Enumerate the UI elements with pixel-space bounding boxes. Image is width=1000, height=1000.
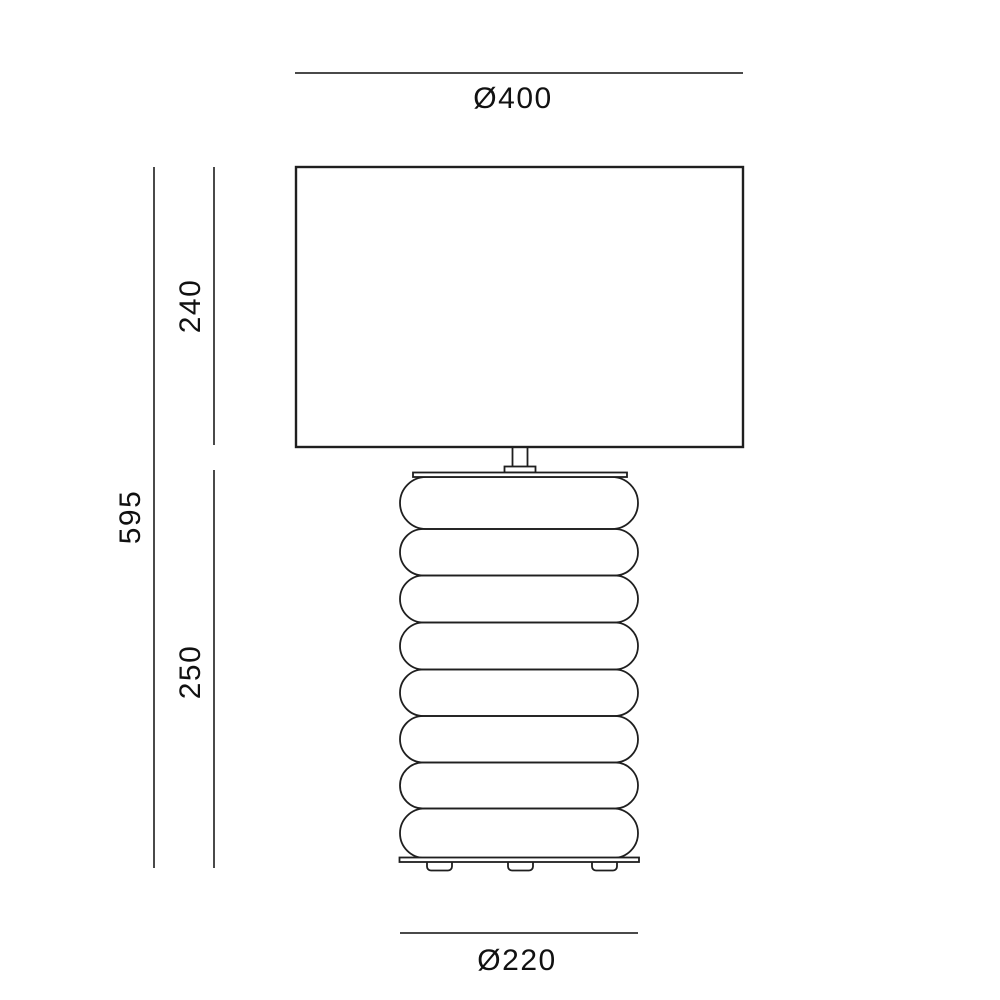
lamp-line-drawing bbox=[0, 0, 1000, 1000]
stem-assembly bbox=[413, 447, 627, 477]
dimension-label-base-diameter: Ø220 bbox=[477, 944, 556, 978]
body-bubble-1 bbox=[400, 477, 638, 529]
base-plate bbox=[400, 858, 640, 863]
dimension-label-shade-diameter: Ø400 bbox=[473, 82, 552, 116]
dimension-label-total-height: 595 bbox=[114, 490, 148, 545]
body-bubble-8 bbox=[400, 809, 638, 859]
body-bubble-6 bbox=[400, 716, 638, 763]
body-bubble-4 bbox=[400, 623, 638, 670]
lampshade-outline bbox=[296, 167, 743, 447]
body-bubble-5 bbox=[400, 670, 638, 717]
dimension-label-body-height: 250 bbox=[174, 645, 208, 700]
dimension-label-shade-height: 240 bbox=[174, 279, 208, 334]
body-bubble-7 bbox=[400, 763, 638, 809]
mounting-plate bbox=[413, 473, 627, 478]
lamp-body-bubbles bbox=[400, 477, 638, 858]
dimension-lines bbox=[154, 73, 743, 933]
body-bubble-3 bbox=[400, 576, 638, 623]
lamp-dimension-diagram: Ø400 595 240 250 Ø220 bbox=[0, 0, 1000, 1000]
body-bubble-2 bbox=[400, 529, 638, 576]
